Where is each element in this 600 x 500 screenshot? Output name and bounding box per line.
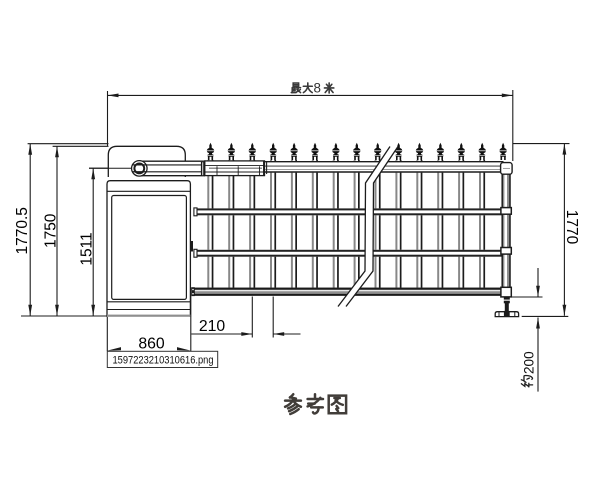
svg-text:1750: 1750 [42, 213, 59, 248]
svg-text:200: 200 [522, 351, 537, 374]
svg-text:8: 8 [313, 81, 320, 96]
svg-text:1511: 1511 [78, 232, 95, 265]
svg-text:1770: 1770 [563, 210, 580, 245]
svg-text:860: 860 [138, 335, 165, 352]
svg-text:1770.5: 1770.5 [14, 207, 31, 254]
svg-text:210: 210 [199, 318, 226, 335]
svg-text:1597223210310616.png: 1597223210310616.png [113, 354, 214, 366]
